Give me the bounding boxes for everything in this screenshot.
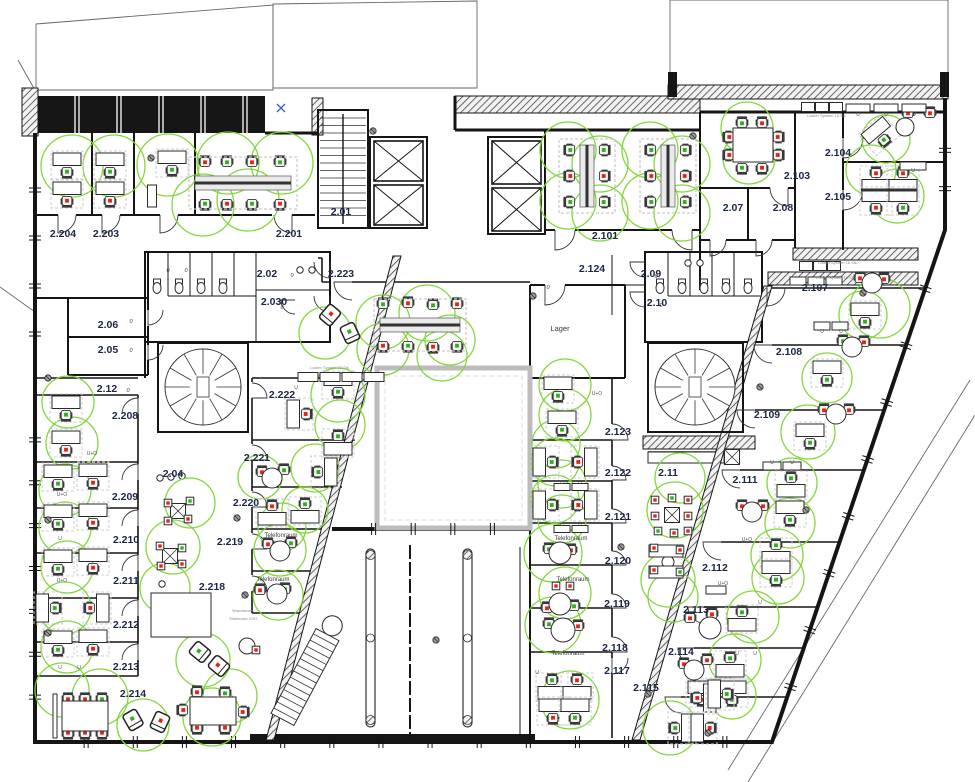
annotation-label: Wandtresen	[232, 608, 253, 613]
chair-icon	[773, 131, 784, 144]
chair-icon	[266, 499, 279, 510]
detector-icon	[370, 128, 376, 134]
annotation-label: Telefonraum	[264, 533, 297, 539]
stool-icon	[676, 568, 684, 576]
chair-icon	[736, 116, 749, 127]
stool-icon	[684, 512, 692, 520]
desk	[774, 499, 806, 527]
stool-icon	[178, 560, 186, 568]
desk	[726, 605, 758, 633]
annotation-label: Telefonraum	[551, 651, 584, 657]
desk	[34, 592, 62, 624]
coverage-circle	[137, 134, 199, 196]
desk	[849, 301, 881, 329]
door-arc	[148, 310, 163, 325]
chair-icon	[785, 471, 798, 482]
chair-icon	[299, 497, 312, 508]
desk	[775, 471, 807, 499]
floor-plan-page: 2.2042.2032.2012.012.1012.1032.072.082.1…	[0, 0, 975, 782]
annotation-label: U	[578, 480, 582, 486]
door-arc	[665, 697, 681, 713]
walls	[35, 96, 945, 742]
chair-icon	[191, 685, 204, 696]
annotation-label: U	[912, 112, 916, 118]
annotation-label: 0	[129, 319, 133, 325]
stool-icon	[668, 494, 676, 502]
annotation-label: U	[790, 460, 794, 466]
annotation-label: U	[560, 522, 564, 528]
desk	[50, 429, 82, 457]
chair-icon	[897, 203, 910, 214]
annotation-label: U	[753, 651, 757, 657]
stool-icon	[157, 562, 165, 570]
coverage-circle	[417, 331, 467, 381]
door-arc	[252, 383, 267, 398]
chair-icon	[402, 296, 415, 307]
coverage-circle	[399, 285, 455, 341]
table	[816, 103, 829, 112]
stool-icon	[654, 527, 662, 535]
chair-icon	[311, 466, 322, 479]
stool-icon	[164, 499, 172, 507]
room-label: 2.211	[113, 575, 139, 587]
chair-icon	[701, 653, 714, 664]
table	[53, 694, 57, 738]
annotation-label: U	[77, 665, 81, 671]
round-table	[551, 618, 575, 642]
room-label: 2.114	[668, 646, 694, 658]
annotation-label: U+O	[718, 581, 729, 587]
floor-plan-canvas: 2.2042.2032.2012.012.1012.1032.072.082.1…	[0, 0, 975, 782]
annotation-label: 0	[166, 268, 170, 274]
detector-icon	[530, 293, 536, 299]
square-table	[665, 508, 680, 523]
table	[800, 262, 813, 271]
desk	[42, 548, 74, 576]
survey-cross-icon	[277, 104, 285, 112]
stool-icon	[186, 497, 194, 505]
door-arc	[122, 600, 138, 616]
sink-icon	[697, 260, 703, 266]
desk	[77, 462, 109, 490]
stool-icon	[252, 646, 260, 654]
table	[298, 373, 318, 382]
stool-icon	[650, 544, 658, 552]
room-label: 2.113	[683, 604, 709, 616]
annotation-label: 0	[129, 348, 133, 354]
detector-icon	[803, 507, 809, 513]
chair-icon	[736, 163, 749, 174]
round-table	[699, 617, 721, 639]
chair-icon	[301, 408, 312, 421]
chair-icon	[680, 196, 691, 209]
annotation-label: U+O	[742, 537, 753, 543]
door-arc	[122, 464, 138, 480]
room-label: 2.122	[605, 467, 631, 479]
desk	[760, 559, 792, 587]
desk	[77, 628, 109, 656]
chair-icon	[571, 456, 582, 469]
annotation-label: U	[58, 665, 62, 671]
desk	[311, 456, 339, 488]
chair-icon	[104, 196, 117, 207]
desk	[94, 180, 126, 208]
room-label: 2.123	[605, 426, 631, 438]
desk	[51, 151, 83, 179]
annotation-label: U	[535, 670, 539, 676]
chair-icon	[87, 478, 100, 489]
chair-icon	[61, 167, 74, 178]
annotation-label: U+O	[57, 578, 68, 584]
annotation-label: U	[58, 536, 62, 542]
door-arc	[122, 510, 138, 526]
detector-icon	[45, 517, 51, 523]
annotation-label: U	[758, 600, 762, 606]
room-label: 2.121	[605, 511, 631, 523]
table	[364, 373, 384, 382]
chair-icon	[680, 170, 691, 183]
door-arc	[555, 230, 575, 250]
lounge-chair-icon	[149, 711, 170, 734]
room-label: 2.201	[276, 228, 302, 240]
desk	[51, 180, 83, 208]
chair-icon	[563, 170, 574, 183]
chair-icon	[599, 196, 610, 209]
chair-icon	[547, 499, 558, 512]
annotation-label: U	[735, 651, 739, 657]
annotation-label: Telefonraum	[556, 577, 589, 583]
round-table	[896, 118, 914, 136]
chair-icon	[87, 563, 100, 574]
room-label: 2.11	[658, 467, 678, 479]
desk	[542, 375, 574, 403]
room-label: 2.109	[754, 409, 780, 421]
table	[320, 373, 340, 382]
detector-icon	[148, 155, 154, 161]
detector-icon	[705, 730, 711, 736]
room-label: 2.108	[776, 346, 802, 358]
desk	[531, 489, 559, 521]
table	[733, 128, 773, 162]
room-label: 2.204	[50, 228, 76, 240]
table	[148, 185, 157, 207]
chair-icon	[644, 144, 655, 157]
chair-icon	[784, 515, 797, 526]
annotation-label: Telefonraum	[256, 577, 289, 583]
detector-icon	[45, 630, 51, 636]
annotation-label: U	[839, 329, 843, 335]
table	[706, 586, 726, 594]
room-label: 2.214	[120, 688, 146, 700]
desk	[77, 502, 109, 530]
chair-icon	[870, 203, 883, 214]
chair-icon	[547, 713, 560, 724]
chair-icon	[52, 564, 65, 575]
desk	[811, 359, 843, 387]
chair-icon	[254, 583, 267, 594]
sink-icon	[685, 260, 691, 266]
coverage-circles	[35, 102, 924, 755]
room-label: 2.105	[825, 191, 851, 203]
annotation-label: U	[560, 480, 564, 486]
toilet-icon	[744, 279, 752, 294]
annotation-label: U+O	[57, 492, 68, 498]
room-label: 2.212	[113, 619, 139, 631]
annotation-label: Sideboard 2OH	[229, 616, 257, 621]
square-table	[171, 504, 186, 519]
annotation-label: U	[884, 112, 888, 118]
detector-icon	[45, 375, 51, 381]
stool-icon	[552, 582, 560, 590]
room-label: 2.115	[633, 682, 659, 694]
table	[902, 104, 926, 112]
chair-icon	[87, 518, 100, 529]
annotation-label: 0	[126, 388, 130, 394]
round-table	[270, 541, 290, 561]
room-label: 2.219	[217, 536, 243, 548]
square-table	[725, 450, 740, 465]
door-arc	[630, 292, 645, 307]
toilet-icon	[656, 279, 664, 294]
table	[190, 697, 236, 725]
chair-icon	[722, 131, 733, 144]
chair-icon	[571, 499, 582, 512]
toilet-icon	[722, 279, 730, 294]
detector-icon	[618, 544, 624, 550]
chair-icon	[50, 602, 61, 615]
door-arc	[703, 542, 721, 560]
chair-icon	[668, 722, 679, 735]
chair-icon	[547, 456, 558, 469]
desk	[794, 422, 826, 450]
round-table	[549, 542, 571, 564]
chair-icon	[770, 538, 783, 549]
stool-icon	[156, 542, 164, 550]
chair-icon	[773, 149, 784, 162]
chair-icon	[563, 196, 574, 209]
annotation-label: U	[856, 112, 860, 118]
room-label: 2.220	[233, 497, 259, 509]
toilet-icon	[700, 279, 708, 294]
chair-icon	[644, 170, 655, 183]
room-label: 2.203	[93, 228, 119, 240]
desk	[83, 592, 111, 624]
desk	[285, 398, 313, 430]
room-label: 2.221	[244, 452, 270, 464]
stool-icon	[651, 512, 659, 520]
desk	[714, 651, 746, 679]
chair-icon	[238, 706, 249, 719]
room-label: 2.222	[269, 389, 295, 401]
chair-icon	[870, 166, 883, 177]
door-arc	[334, 282, 352, 300]
chair-icon	[52, 479, 65, 490]
stool-icon	[566, 582, 574, 590]
annotation-label: U	[578, 522, 582, 528]
annotation-label: Locker System 32 Stk.	[310, 365, 350, 370]
stool-icon	[184, 515, 192, 523]
chair-icon	[377, 297, 390, 308]
room-label: 2.118	[602, 642, 628, 654]
chair-icon	[804, 438, 817, 449]
room-label: 2.05	[98, 344, 119, 356]
square-table	[163, 549, 178, 564]
round-table	[262, 468, 282, 488]
stool-icon	[164, 517, 172, 525]
room-label: 2.10	[647, 297, 668, 309]
room-label: 2.210	[113, 534, 139, 546]
lounge-chair-icon	[339, 322, 360, 345]
stool-icon	[178, 544, 186, 552]
desk	[156, 149, 188, 177]
annotation-label: Locker System 16 Stk.	[818, 260, 858, 265]
chair-icon	[83, 602, 94, 615]
room-label: 2.01	[331, 206, 352, 218]
chair-icon	[722, 688, 733, 701]
desk	[289, 497, 321, 525]
annotation-label: 0	[184, 268, 188, 274]
chair-icon	[87, 644, 100, 655]
chair-icon	[599, 144, 610, 157]
table	[874, 104, 898, 112]
room-label: 2.223	[328, 268, 354, 280]
desk	[531, 446, 559, 478]
room-label: 2.218	[199, 581, 225, 593]
door-arc	[148, 345, 163, 360]
desk	[77, 547, 109, 575]
room-label: 2.111	[732, 474, 757, 486]
detector-icon	[433, 637, 439, 643]
toilet-icon	[175, 279, 183, 294]
annotation-label: U	[820, 329, 824, 335]
coverage-circle	[727, 591, 779, 643]
chair-icon	[166, 165, 179, 176]
lounge-chair-icon	[207, 654, 230, 677]
room-label: 2.112	[702, 562, 728, 574]
room-label: 2.08	[773, 202, 794, 214]
table	[830, 103, 843, 112]
annotation-label: Lager	[550, 324, 570, 333]
window-ticks	[29, 94, 951, 748]
room-label: 2.06	[98, 319, 119, 331]
round-table	[842, 337, 862, 357]
desk	[689, 712, 717, 744]
detector-icon	[860, 290, 866, 296]
desk	[571, 489, 599, 521]
round-table	[862, 273, 882, 293]
room-label: 2.209	[112, 491, 138, 503]
chair-icon	[569, 713, 582, 724]
chair-icon	[556, 425, 569, 436]
room-label: 2.119	[604, 598, 630, 610]
chair-icon	[52, 645, 65, 656]
chair-icon	[770, 575, 783, 586]
round-table	[742, 502, 762, 522]
chair-icon	[60, 410, 73, 421]
round-table	[549, 593, 571, 615]
annotation-label: 0	[546, 285, 550, 291]
toilet-icon	[153, 279, 161, 294]
room-label: 2.101	[592, 230, 618, 242]
elevator-bank-west	[370, 137, 427, 228]
room-label: 2.213	[113, 661, 139, 673]
chair-icon	[104, 167, 117, 178]
room-label: 2.07	[723, 202, 744, 214]
table	[342, 373, 362, 382]
annotation-label: Telefonraum	[554, 536, 587, 542]
sink-icon	[297, 267, 303, 273]
annotation-label: Locker System 15 Stk.	[816, 275, 856, 280]
annotation-label: Locker System 15 Stk.	[807, 113, 847, 118]
sink-icon	[159, 581, 165, 587]
table	[846, 104, 870, 112]
room-label: 2.09	[641, 268, 662, 280]
skylight-bar	[366, 549, 375, 727]
chair-icon	[644, 196, 655, 209]
stool-icon	[650, 566, 658, 574]
room-label: 2.124	[579, 263, 605, 275]
room-label: 2.120	[605, 555, 631, 567]
chair-icon	[546, 673, 559, 684]
detector-icon	[234, 515, 240, 521]
annotation-label: U+O	[592, 391, 603, 397]
round-table	[684, 660, 704, 680]
chair-icon	[690, 692, 701, 705]
chair-icon	[599, 170, 610, 183]
chair-icon	[332, 429, 345, 440]
desk	[94, 151, 126, 179]
chair-icon	[756, 163, 769, 174]
atrium-stair	[271, 611, 348, 726]
toilet-icon	[678, 279, 686, 294]
chair-icon	[756, 116, 769, 127]
annotation-label: U	[911, 168, 915, 174]
detector-icon	[242, 592, 248, 598]
detector-icon	[690, 133, 696, 139]
annotation-label: 0	[290, 273, 294, 279]
chair-icon	[736, 605, 749, 616]
chair-icon	[332, 387, 345, 398]
toilet-icon	[197, 279, 205, 294]
door-arc	[737, 410, 755, 428]
chair-icon	[563, 144, 574, 157]
room-label: 2.02	[257, 268, 278, 280]
toilet-icon	[219, 279, 227, 294]
sink-icon	[309, 267, 315, 273]
chair-icon	[821, 375, 834, 386]
round-table	[267, 584, 287, 604]
door-arc	[122, 644, 138, 660]
annotation-label: U	[770, 460, 774, 466]
desk	[559, 697, 591, 725]
annotation-label: U+O	[87, 451, 98, 457]
room-label: 2.117	[604, 665, 630, 677]
room-label: 2.107	[802, 282, 828, 294]
desk	[546, 409, 578, 437]
door-arc	[754, 345, 772, 363]
lounge-chair-icon	[122, 708, 144, 731]
chair-icon	[176, 704, 187, 717]
door-arc	[756, 240, 772, 256]
lounge-chair-icon	[188, 640, 211, 663]
chair-icon	[427, 342, 440, 353]
round-table	[826, 404, 846, 424]
room-label: 2.208	[112, 410, 138, 422]
stool-icon	[676, 546, 684, 554]
atrium-skylight	[366, 368, 530, 737]
chair-icon	[427, 298, 440, 309]
table	[62, 701, 108, 731]
